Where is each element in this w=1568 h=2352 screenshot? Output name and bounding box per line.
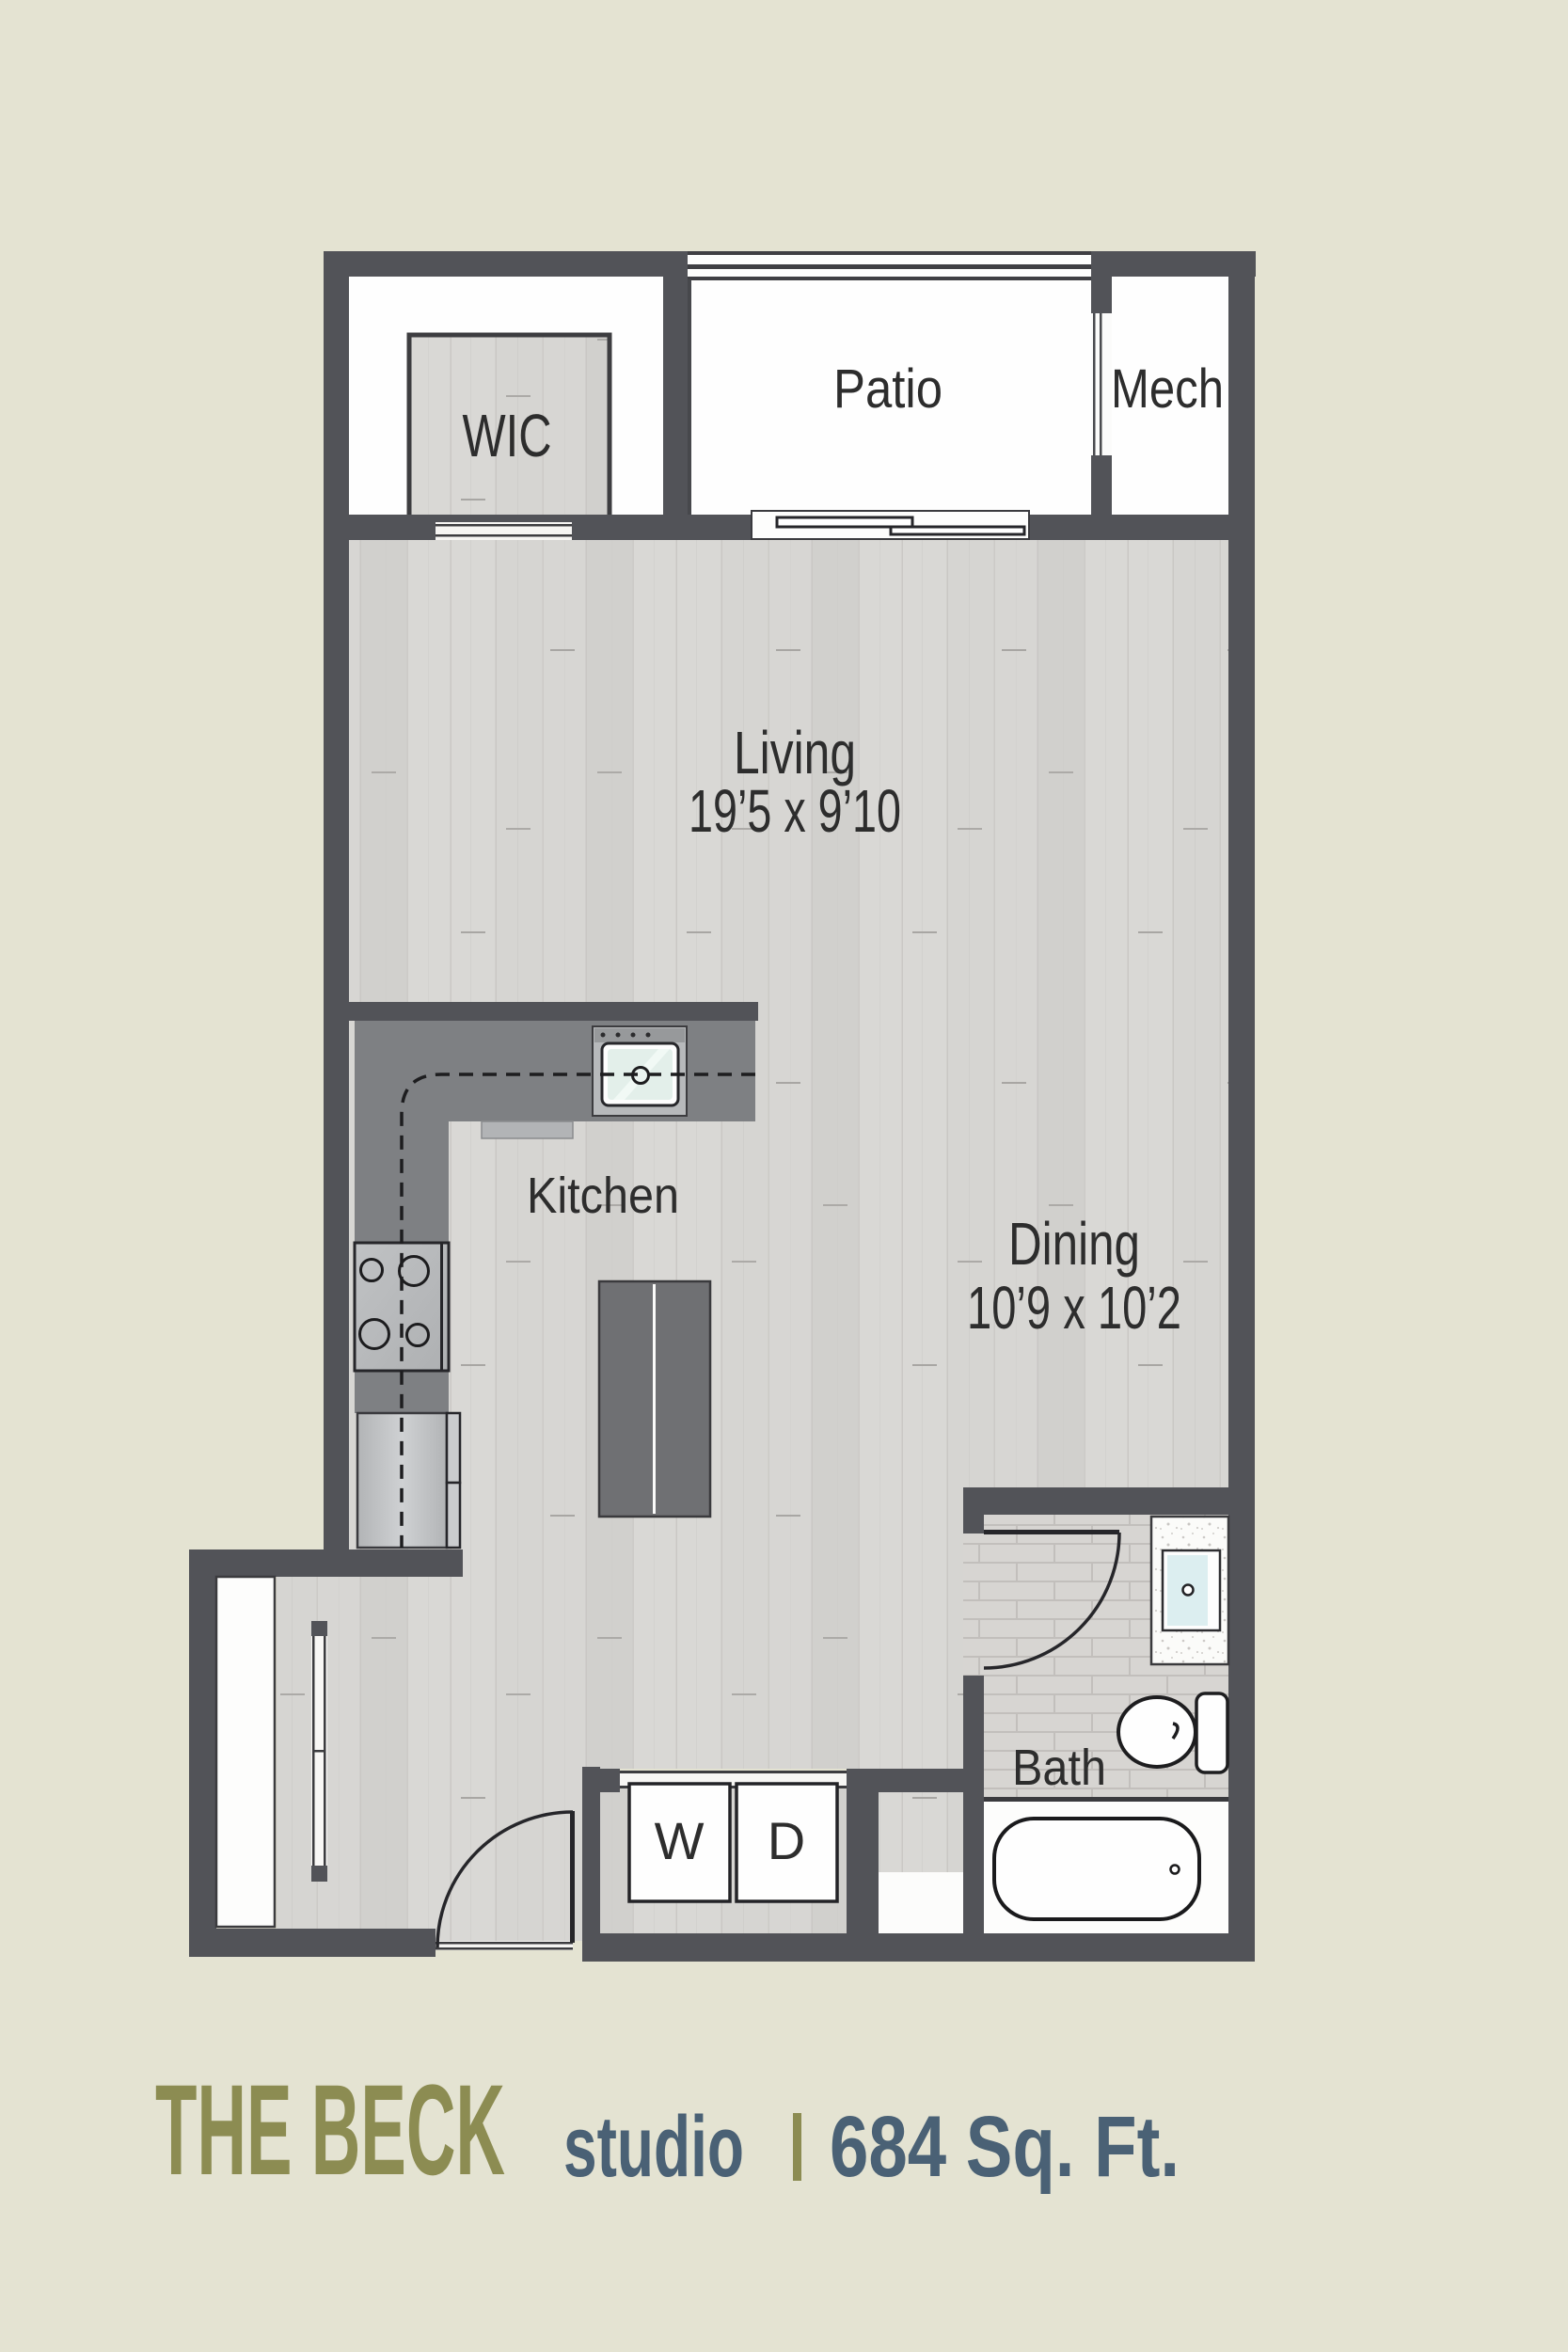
svg-text:D: D (768, 1811, 805, 1870)
svg-text:WIC: WIC (463, 402, 552, 469)
svg-text:studio: studio (563, 2099, 744, 2195)
svg-text:Mech: Mech (1111, 358, 1224, 420)
svg-text:THE BECK: THE BECK (155, 2058, 505, 2202)
svg-text:Dining: Dining (1008, 1210, 1140, 1278)
svg-text:684 Sq. Ft.: 684 Sq. Ft. (830, 2099, 1180, 2195)
svg-text:Kitchen: Kitchen (527, 1168, 679, 1224)
svg-text:Patio: Patio (833, 358, 942, 420)
svg-text:19’5 x 9’10: 19’5 x 9’10 (689, 777, 901, 845)
svg-text:10’9 x 10’2: 10’9 x 10’2 (967, 1274, 1181, 1342)
svg-text:Bath: Bath (1012, 1740, 1106, 1796)
svg-text:W: W (655, 1811, 705, 1870)
